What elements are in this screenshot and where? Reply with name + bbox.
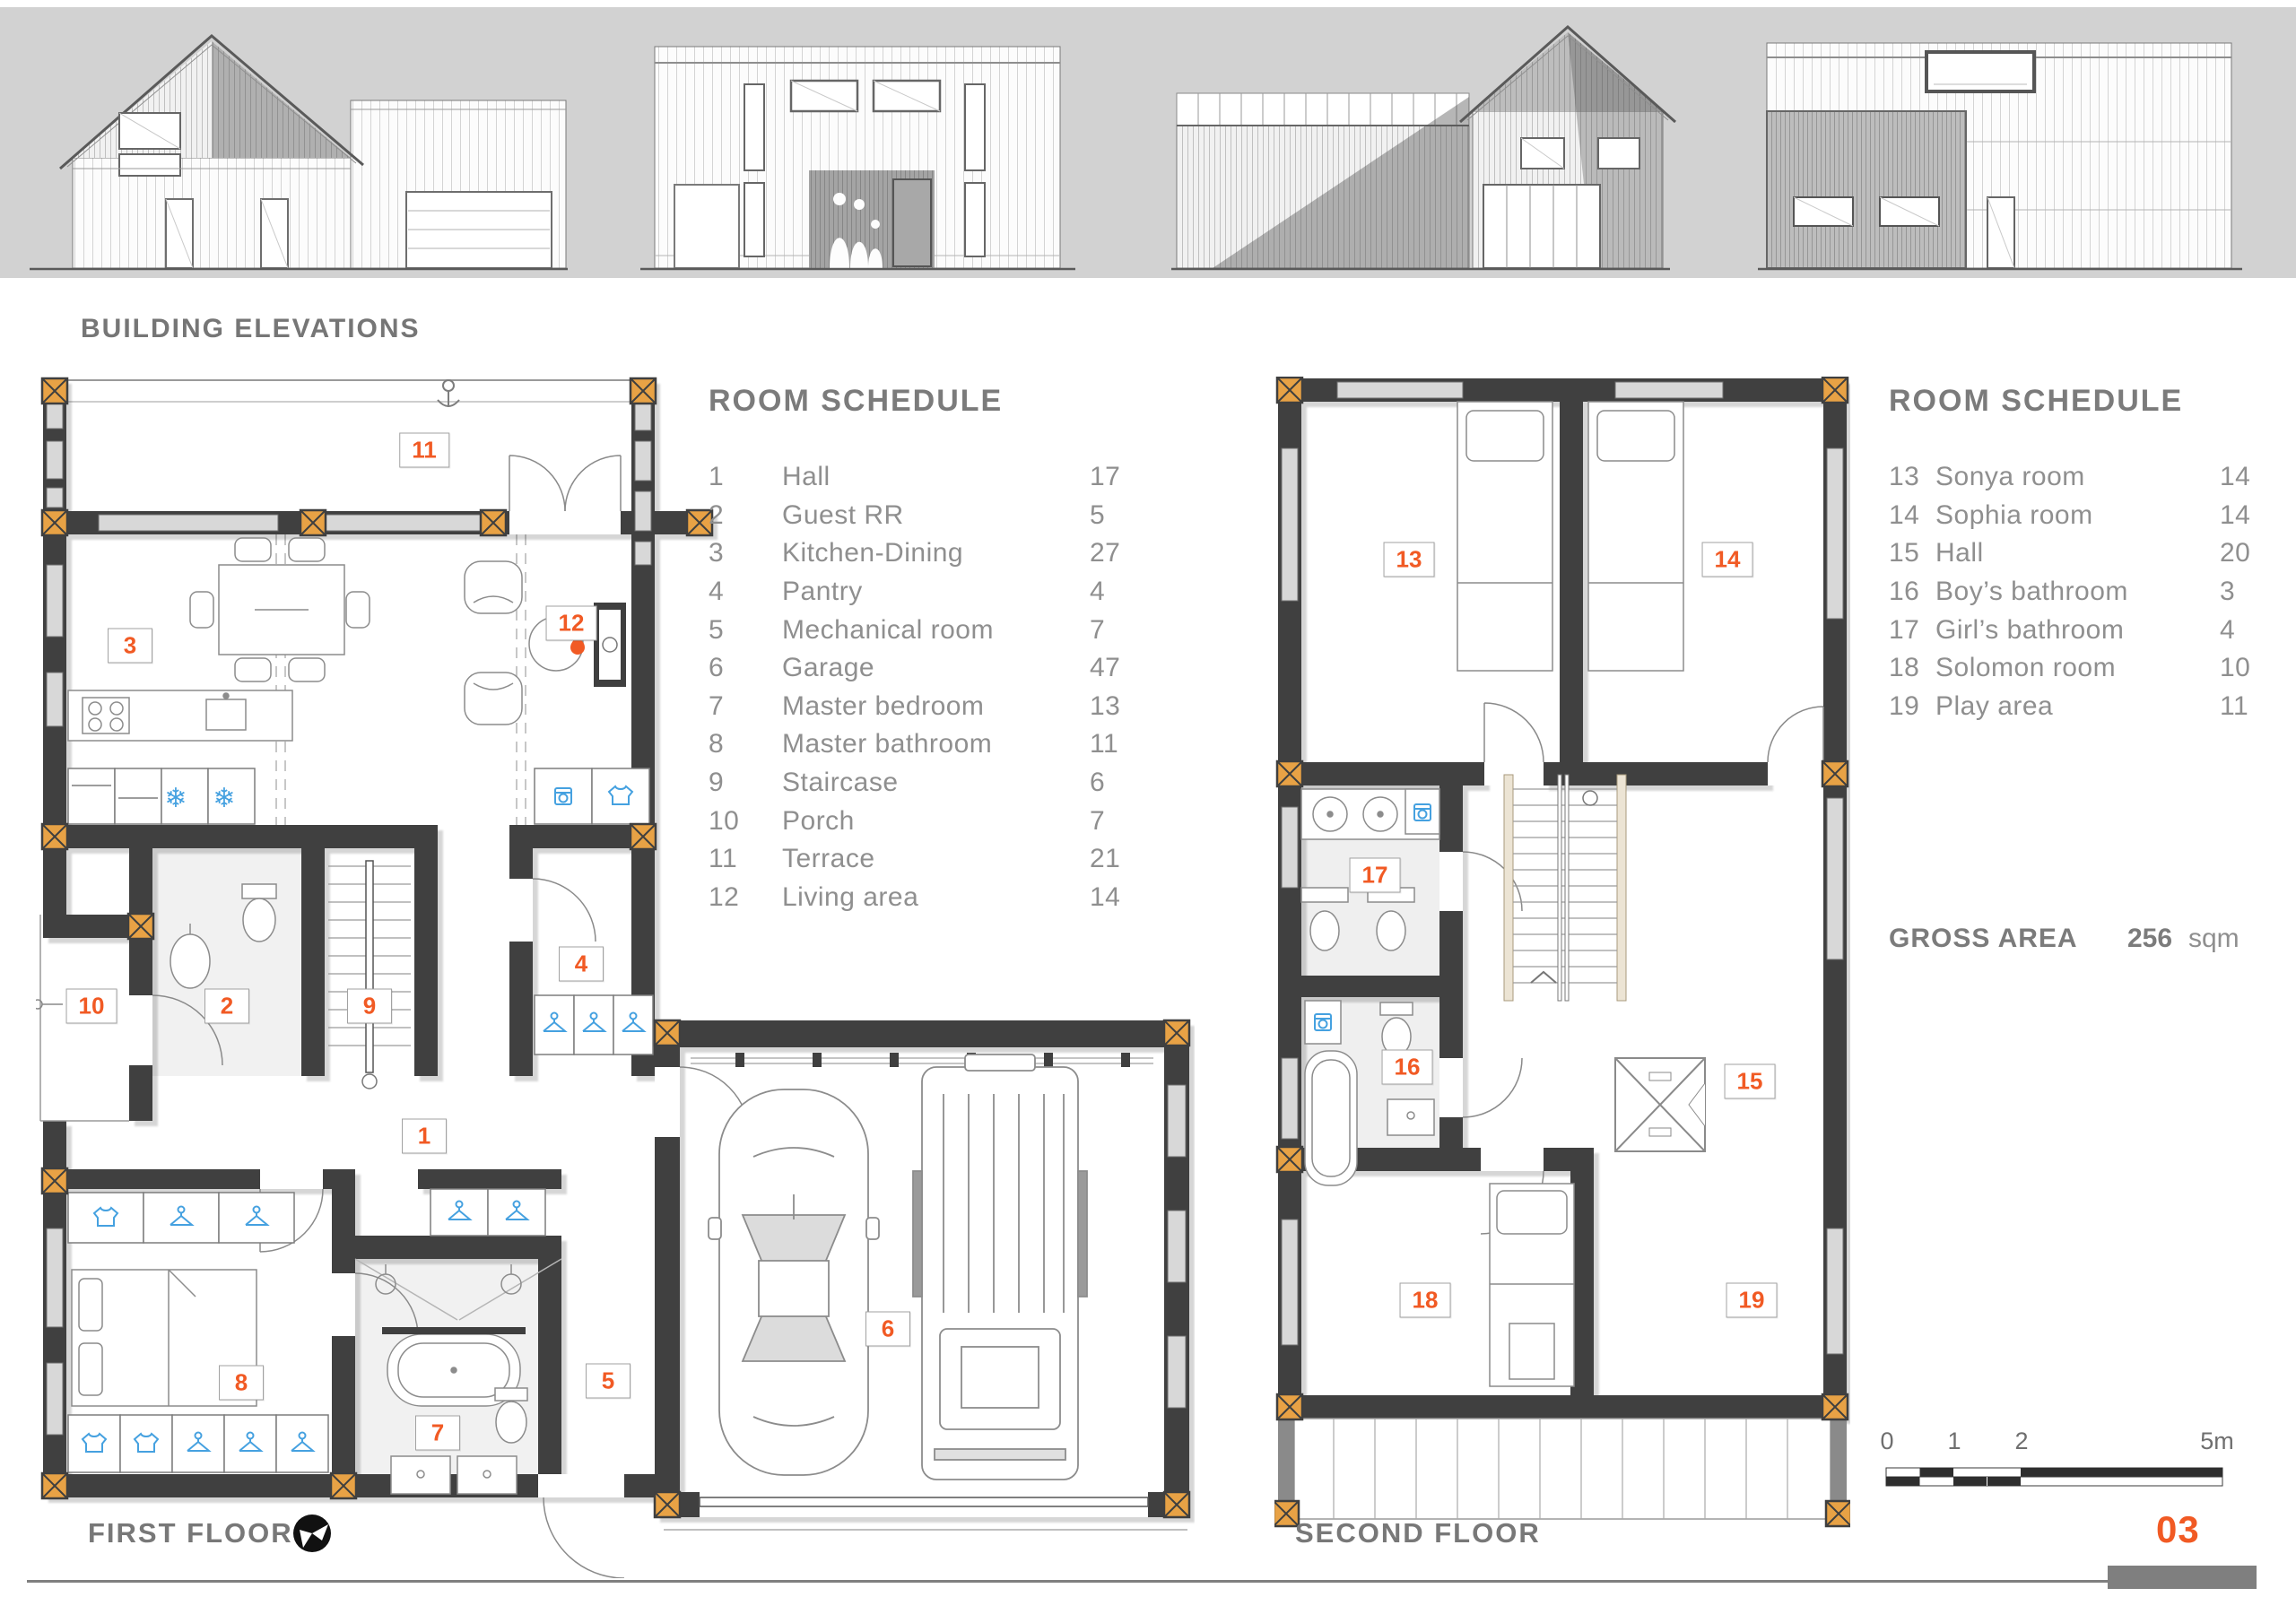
room-number: 17 [1889,615,1935,646]
room-number: 9 [709,768,782,798]
room-name: Kitchen-Dining [782,538,1090,568]
room-name: Solomon room [1935,653,2220,683]
room-area: 6 [1090,768,1144,798]
room-number: 5 [709,615,782,646]
floor-void-net [1615,1058,1705,1151]
room-number: 18 [1889,653,1935,683]
porch-outline [40,915,129,1121]
room-area: 4 [1090,577,1144,607]
room-area: 17 [1090,462,1144,492]
elevations-drawing [0,7,2296,278]
gross-area: GROSS AREA 256 sqm [1889,924,2283,954]
room-number: 8 [709,729,782,759]
schedule-row: 10 Porch 7 [709,802,1144,840]
room-area: 7 [1090,615,1144,646]
second-floor-caption: SECOND FLOOR [1295,1517,1541,1549]
schedule-row: 5 Mechanical room 7 [709,611,1144,649]
building-elevations-title: BUILDING ELEVATIONS [81,314,421,344]
kitchen-island [68,690,292,741]
room-name: Boy’s bathroom [1935,577,2220,607]
second-floor-room-schedule: ROOM SCHEDULE 13 Sonya room 14 14 Sophia… [1889,384,2278,725]
schedule-row: 7 Master bedroom 13 [709,688,1144,726]
schedule-row: 14 Sophia room 14 [1889,497,2278,535]
garage [664,1053,1187,1530]
elevation-side [1758,43,2242,269]
building-elevations-strip [0,7,2296,278]
scale-tick: 2 [2014,1428,2028,1455]
schedule-row: 16 Boy’s bathroom 3 [1889,573,2278,612]
room-area: 14 [1090,882,1144,913]
schedule-row: 18 Solomon room 10 [1889,649,2278,688]
room-number: 7 [709,691,782,722]
room-number: 4 [709,577,782,607]
room-name: Guest RR [782,500,1090,531]
scale-tick: 0 [1880,1428,1893,1455]
schedule-row: 6 Garage 47 [709,649,1144,688]
staircase [1504,775,1626,1001]
room-name: Master bathroom [782,729,1090,759]
room-name: Hall [1935,538,2220,568]
room-number: 14 [1889,500,1935,531]
room-area: 11 [2220,691,2278,722]
room-name: Girl’s bathroom [1935,615,2220,646]
room-area: 5 [1090,500,1144,531]
room-name: Terrace [782,844,1090,874]
master-bed [72,1270,257,1406]
room-number: 1 [709,462,782,492]
schedule-title: ROOM SCHEDULE [1889,384,2278,419]
room-area: 21 [1090,844,1144,874]
first-floor-room-schedule: ROOM SCHEDULE 1 Hall 17 2 Guest RR 5 3 K… [709,384,1144,916]
room-number: 6 [709,653,782,683]
north-arrow-icon [292,1514,332,1553]
room-area: 14 [2220,500,2278,531]
room-name: Play area [1935,691,2220,722]
living-furniture [465,561,583,725]
anchor-icon [438,380,459,407]
room-number: 16 [1889,577,1935,607]
room-number: 13 [1889,462,1935,492]
footer-block [2108,1566,2257,1589]
room-name: Master bedroom [782,691,1090,722]
scale-tick: 1 [1947,1428,1961,1455]
room-number: 11 [709,844,782,874]
schedule-row: 1 Hall 17 [709,458,1144,497]
schedule-title: ROOM SCHEDULE [709,384,1144,419]
snowflake-icon: ❄ [164,784,187,813]
scale-tick: 5m [2200,1428,2234,1455]
room-name: Porch [782,806,1090,837]
schedule-row: 9 Staircase 6 [709,764,1144,803]
room-area: 20 [2220,538,2278,568]
room-area: 7 [1090,806,1144,837]
room-area: 10 [2220,653,2278,683]
room-name: Living area [782,882,1090,913]
room-area: 27 [1090,538,1144,568]
room-name: Sophia room [1935,500,2220,531]
elevation-rear [1171,27,1675,269]
snowflake-icon: ❄ [213,784,235,813]
elevation-front [30,36,568,269]
schedule-row: 15 Hall 20 [1889,534,2278,573]
schedule-row: 17 Girl’s bathroom 4 [1889,611,2278,649]
room-number: 15 [1889,538,1935,568]
page-number: 03 [2156,1508,2200,1551]
gross-area-value: 256 [2127,924,2188,954]
second-floor-plan [1274,377,1850,1533]
room-area: 13 [1090,691,1144,722]
room-number: 2 [709,500,782,531]
first-floor-caption: FIRST FLOOR [88,1517,293,1549]
schedule-row: 3 Kitchen-Dining 27 [709,534,1144,573]
balcony [1278,1419,1847,1523]
schedule-row: 8 Master bathroom 11 [709,725,1144,764]
room-name: Staircase [782,768,1090,798]
car-suv [913,1055,1087,1480]
room-name: Pantry [782,577,1090,607]
room-area: 47 [1090,653,1144,683]
scale-bar: 0 1 2 5m [1873,1428,2235,1492]
footer-rule [27,1580,2117,1583]
gross-area-label: GROSS AREA [1889,924,2127,954]
room-area: 14 [2220,462,2278,492]
room-number: 10 [709,806,782,837]
gross-area-unit: sqm [2188,924,2239,954]
schedule-row: 13 Sonya room 14 [1889,458,2278,497]
scale-bar-graphic [1885,1467,2226,1488]
schedule-row: 2 Guest RR 5 [709,497,1144,535]
schedule-row: 12 Living area 14 [709,879,1144,917]
room-area: 3 [2220,577,2278,607]
schedule-row: 11 Terrace 21 [709,840,1144,879]
room-name: Mechanical room [782,615,1090,646]
elevation-entry [640,47,1075,269]
room-name: Sonya room [1935,462,2220,492]
schedule-row: 4 Pantry 4 [709,573,1144,612]
room-name: Hall [782,462,1090,492]
room-area: 4 [2220,615,2278,646]
room-number: 19 [1889,691,1935,722]
schedule-row: 19 Play area 11 [1889,688,2278,726]
dining-set [190,538,370,681]
room-name: Garage [782,653,1090,683]
room-area: 11 [1090,729,1144,759]
bed [1490,1184,1574,1386]
room-number: 3 [709,538,782,568]
room-number: 12 [709,882,782,913]
car-sedan [709,1089,879,1475]
staircase [328,861,411,1089]
